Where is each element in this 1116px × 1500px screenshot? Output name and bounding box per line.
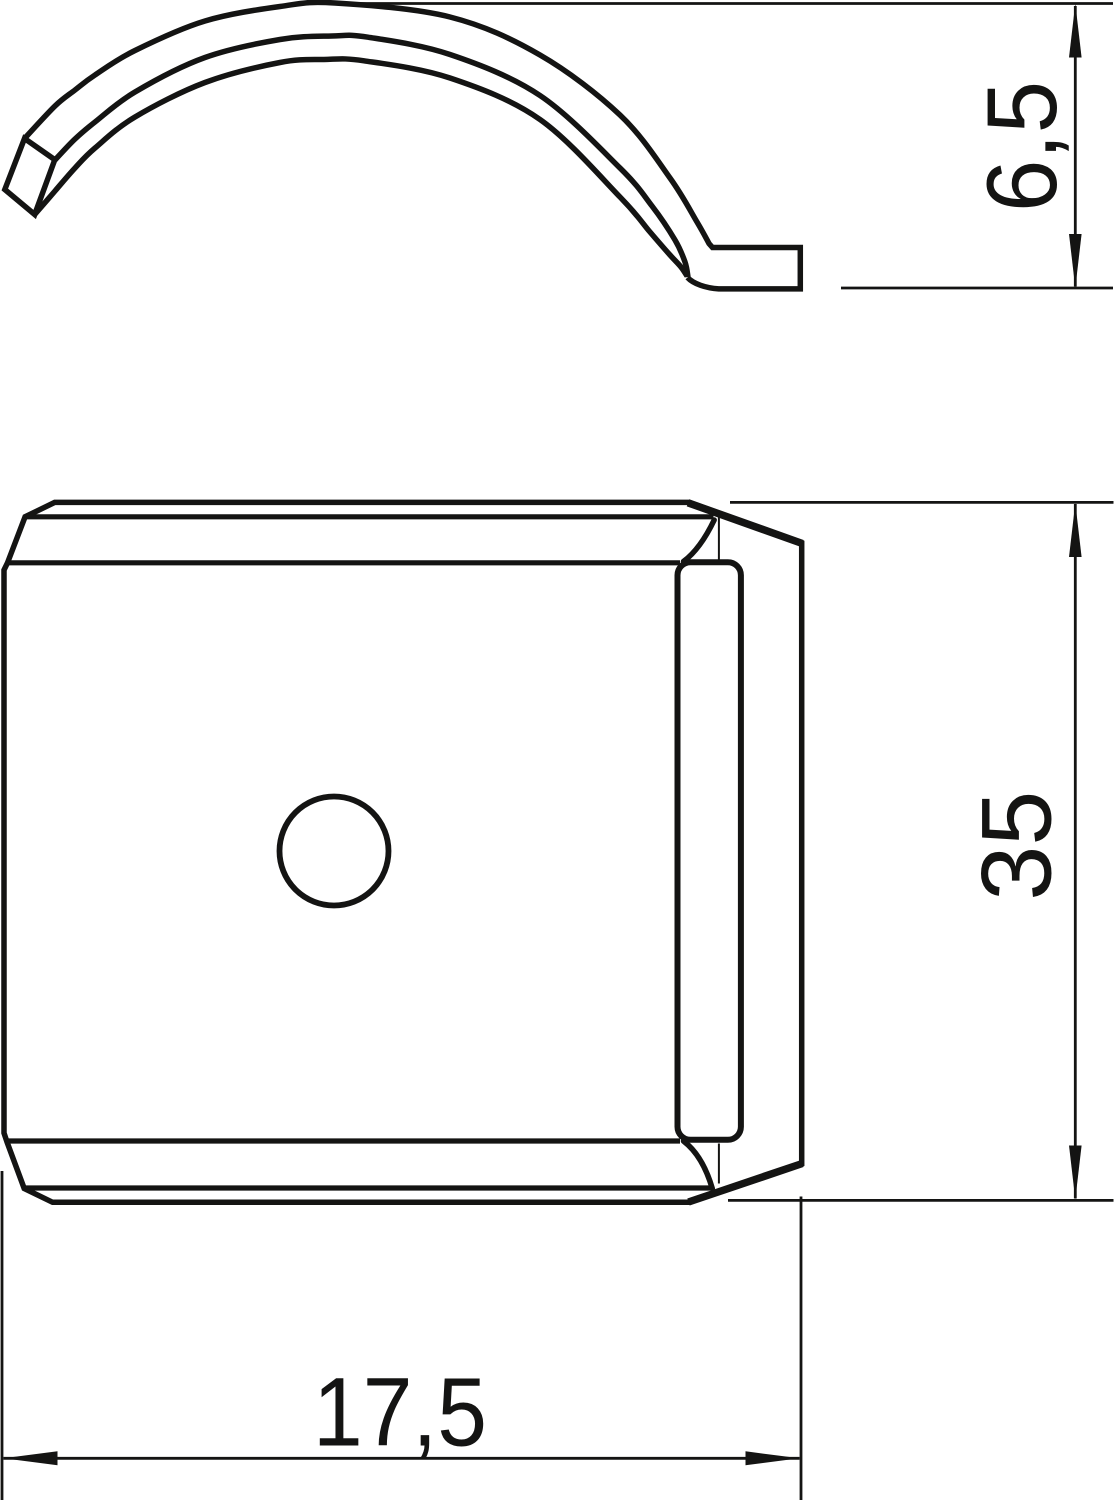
- svg-text:6,5: 6,5: [966, 81, 1077, 212]
- svg-text:17,5: 17,5: [313, 1357, 487, 1466]
- svg-text:35: 35: [960, 791, 1071, 901]
